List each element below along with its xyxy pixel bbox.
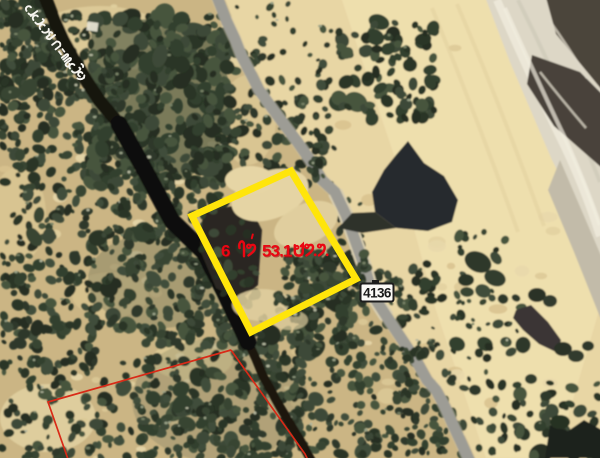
- svg-text:53.1: 53.1: [262, 242, 292, 261]
- svg-text:6: 6: [221, 242, 230, 261]
- svg-text:4136: 4136: [363, 286, 392, 301]
